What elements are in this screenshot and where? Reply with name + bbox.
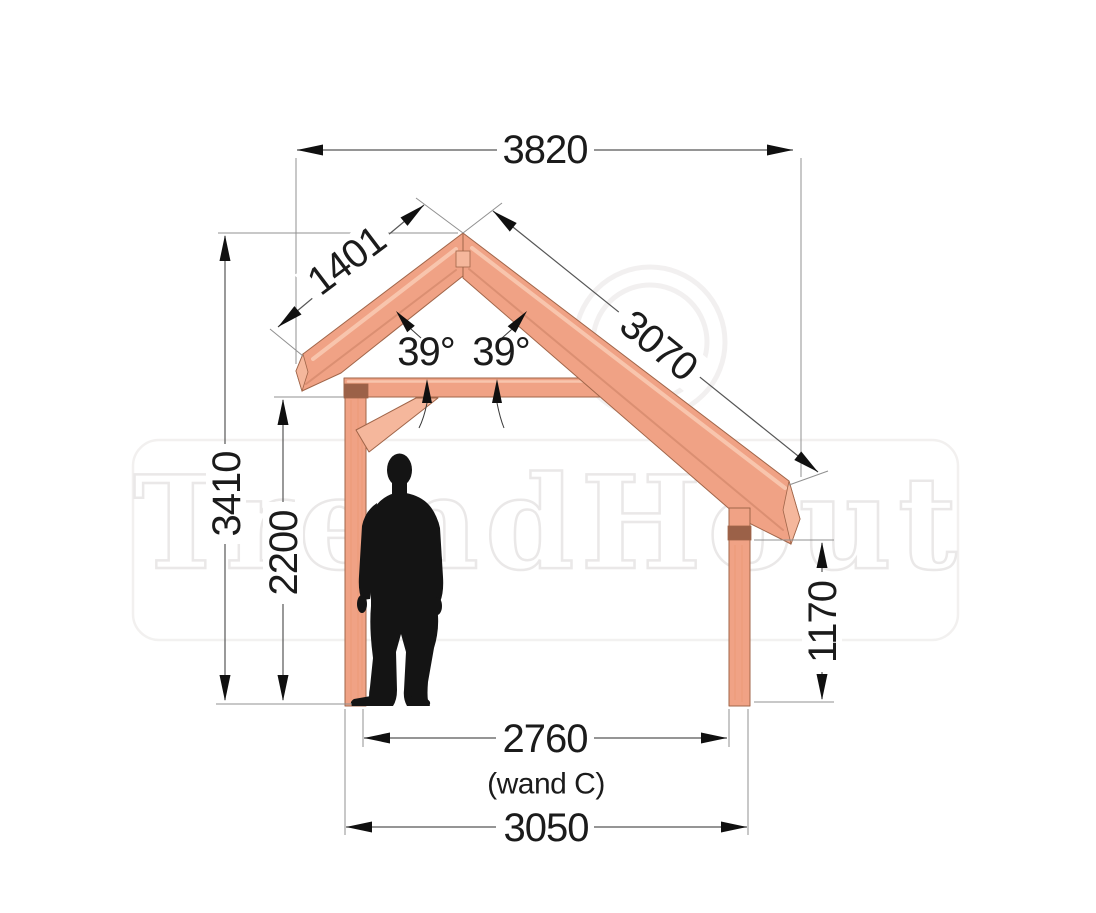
ext-rafter-left-low xyxy=(270,329,303,356)
dim-inner-width: 2760 xyxy=(503,717,588,761)
dim-roof-span: 3820 xyxy=(503,128,588,172)
left-post-connector-block xyxy=(344,384,368,398)
right-post-connector-block xyxy=(728,526,751,540)
dim-ridge-height: 3410 xyxy=(205,452,249,537)
ridge-joint-notch xyxy=(456,251,470,267)
dim-roof-angle-left: 39° xyxy=(397,330,455,374)
dim-inner-width-note: (wand C) xyxy=(487,768,605,801)
ext-rafter-left-top xyxy=(416,198,463,233)
dim-outer-width: 3050 xyxy=(504,806,589,850)
ext-rafter-right-top xyxy=(463,203,502,233)
technical-drawing-canvas: TrendHout xyxy=(0,0,1096,913)
dim-roof-angle-right: 39° xyxy=(472,330,530,374)
dim-wall-height-right: 1170 xyxy=(801,581,845,663)
dim-wall-height-left: 2200 xyxy=(262,511,306,596)
knee-brace xyxy=(356,398,438,452)
